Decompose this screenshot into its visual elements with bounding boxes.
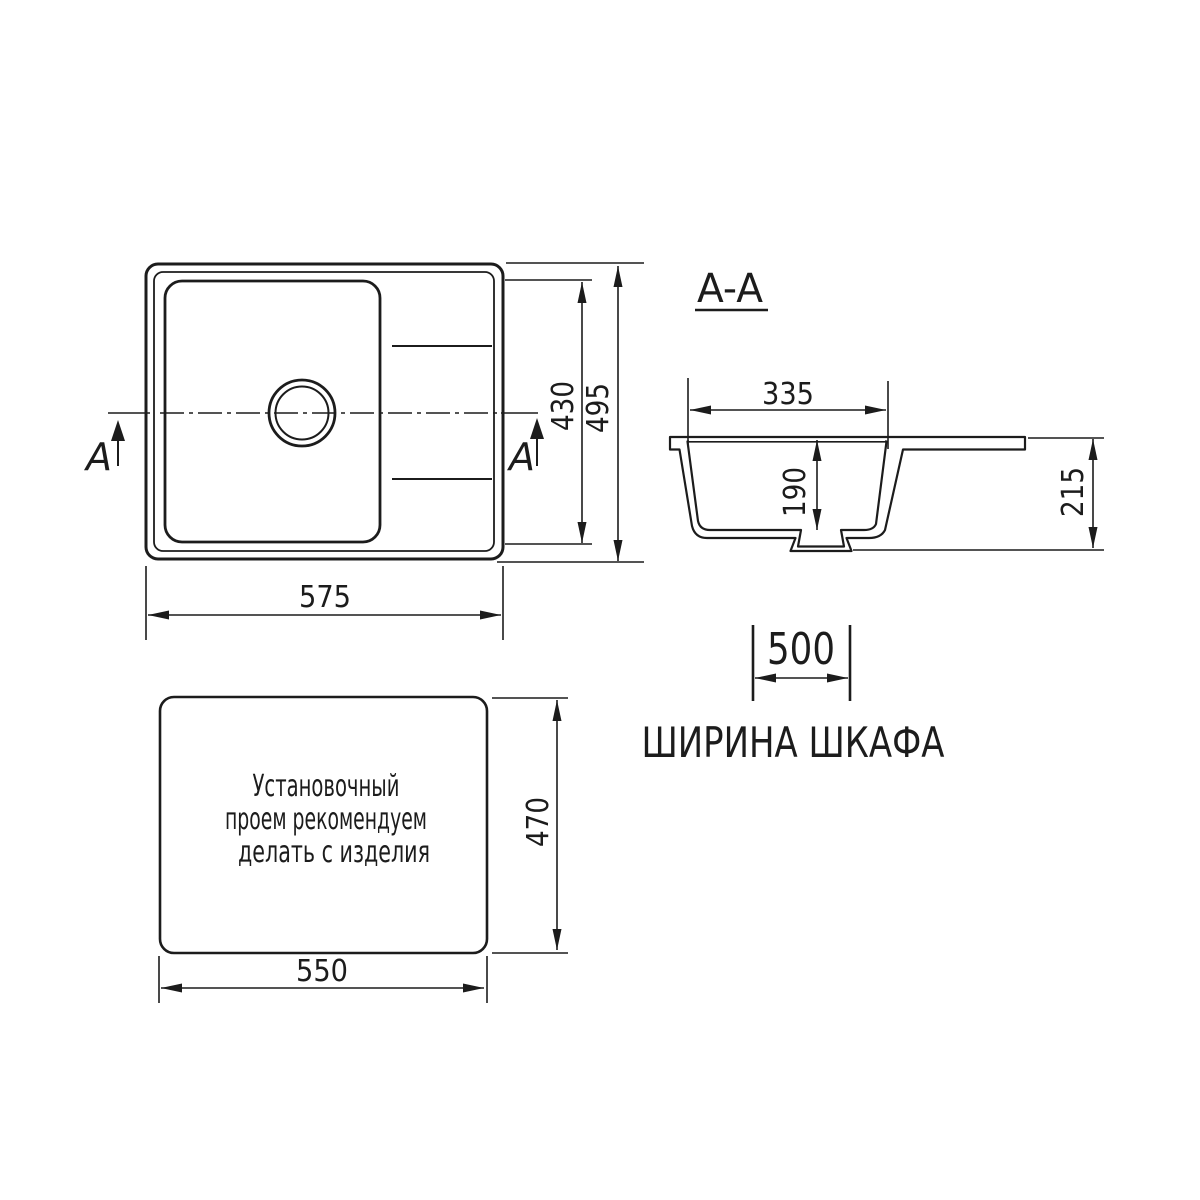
arrowhead [578, 522, 587, 543]
plan-inner-height-label: 430 [546, 381, 581, 431]
plan-outer-height-label: 495 [581, 383, 616, 433]
arrowhead [480, 611, 501, 620]
cutout-note-line3: делать с изделия [238, 835, 430, 870]
dim-190: 190 [778, 440, 822, 530]
section-cut-marks: A A [83, 413, 544, 479]
sink-rim-line [154, 272, 494, 551]
dim-430: 430 [505, 280, 592, 544]
section-view: A-A 335 190 215 [670, 266, 1104, 551]
bowl-opening-gap [689, 439, 885, 441]
arrowhead [1089, 527, 1098, 548]
cabinet-width-value: 500 [767, 624, 835, 675]
bowl-edge [165, 281, 380, 542]
arrowhead [614, 266, 623, 287]
cabinet-width-caption: ШИРИНА ШКАФА [642, 718, 945, 767]
cutout-note-line2: проем рекомендуем [225, 802, 427, 837]
sink-outer-edge [146, 264, 503, 559]
arrowhead [813, 509, 822, 530]
arrowhead [1089, 439, 1098, 460]
cutout-view: Установочный проем рекомендуем делать с … [159, 697, 568, 1003]
cut-arrow-left-head [111, 420, 125, 441]
section-marker-left: A [83, 435, 112, 479]
arrowhead [690, 406, 711, 415]
arrowhead [614, 540, 623, 561]
section-marker-right: A [506, 435, 535, 479]
plan-view: A A 575 430 [83, 263, 644, 640]
cutout-note-line1: Установочный [253, 769, 400, 804]
arrowhead [813, 440, 822, 461]
dim-575: 575 [146, 566, 503, 640]
cutout-height-label: 470 [521, 797, 556, 847]
section-bowl-width-label: 335 [762, 377, 814, 412]
section-title: A-A [697, 266, 764, 312]
section-bowl-depth-label: 190 [778, 467, 813, 517]
plan-width-label: 575 [299, 580, 351, 615]
dim-215: 215 [853, 438, 1104, 550]
arrowhead [463, 984, 484, 993]
cabinet-width: 500 ШИРИНА ШКАФА [642, 624, 945, 767]
arrowhead [578, 282, 587, 303]
arrowhead [553, 700, 562, 721]
drawing-svg: A A 575 430 [0, 0, 1200, 1200]
dim-335: 335 [688, 377, 888, 449]
sink-technical-drawing: A A 575 430 [0, 0, 1200, 1200]
section-material-profile [670, 437, 1025, 551]
dim-550: 550 [159, 954, 487, 1003]
arrowhead [553, 929, 562, 950]
section-height-label: 215 [1056, 467, 1091, 517]
arrowhead [865, 406, 886, 415]
dim-470: 470 [492, 698, 568, 953]
arrowhead [161, 984, 182, 993]
arrowhead [148, 611, 169, 620]
cutout-width-label: 550 [296, 954, 348, 989]
